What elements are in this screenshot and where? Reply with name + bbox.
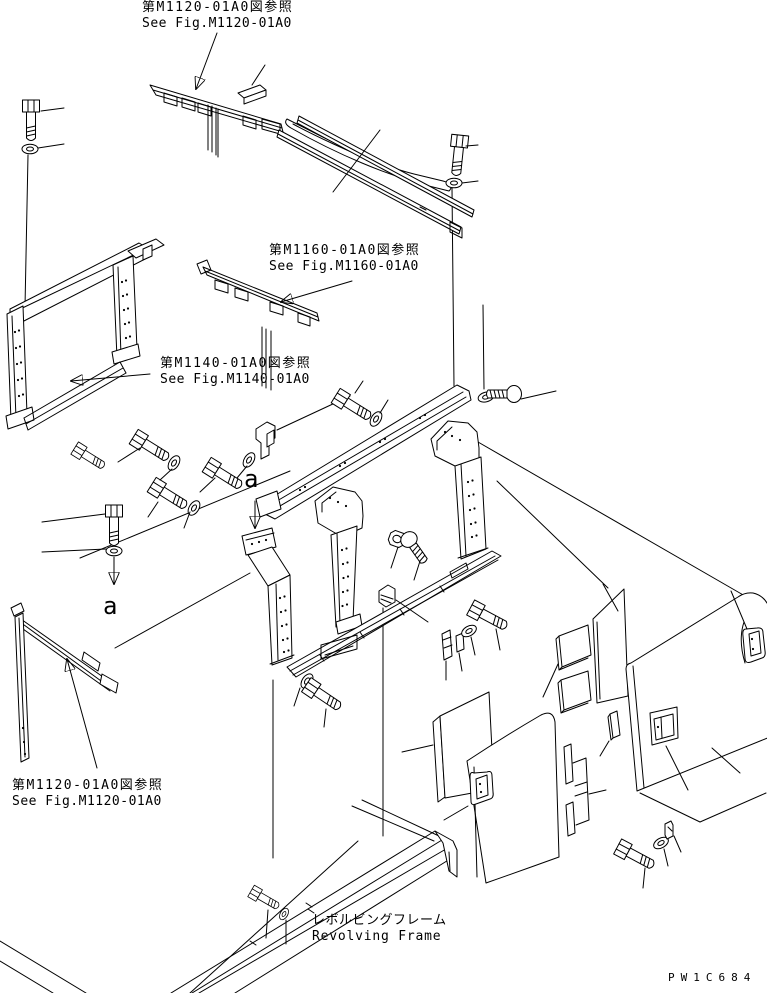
diagram-line-art [0, 0, 767, 993]
ref-label-m1140-jp: 第M1140-01A0図参照 [160, 356, 311, 372]
bottom-right-fasteners [614, 821, 681, 888]
ref-label-m1120-top: 第M1120-01A0図参照 See Fig.M1120-01A0 [142, 0, 293, 32]
revolving-frame-label: レボルビングフレーム Revolving Frame [312, 913, 447, 945]
small-block-part [238, 65, 266, 104]
fastener-cluster [71, 429, 257, 528]
ref-label-m1160: 第M1160-01A0図参照 See Fig.M1160-01A0 [269, 243, 420, 275]
parts-diagram-canvas: 第M1120-01A0図参照 See Fig.M1120-01A0 第M1160… [0, 0, 767, 993]
top-right-bolt-group [446, 134, 478, 188]
section-marker-a-lower: a [103, 594, 117, 618]
bottom-left-frame [11, 603, 118, 762]
rear-sheet-panel [593, 584, 628, 703]
lower-left-bolt-group [294, 672, 345, 727]
right-door-panel [626, 591, 767, 822]
pad-panels [543, 625, 591, 713]
ref-label-m1120-top-en: See Fig.M1120-01A0 [142, 16, 293, 32]
ref-label-m1140-en: See Fig.M1140-01A0 [160, 372, 311, 388]
ref-label-m1160-jp: 第M1160-01A0図参照 [269, 243, 420, 259]
left-pillar [242, 528, 294, 665]
revolving-frame-label-en: Revolving Frame [312, 929, 447, 945]
ref-label-m1140: 第M1140-01A0図参照 See Fig.M1140-01A0 [160, 356, 311, 388]
drawing-code: PW1C684 [668, 971, 756, 984]
long-bar-upper [297, 116, 474, 217]
section-bolt-group [42, 505, 123, 584]
ref-label-m1160-en: See Fig.M1160-01A0 [269, 259, 420, 275]
revolving-frame-beam [0, 800, 457, 993]
revolving-frame-label-jp: レボルビングフレーム [312, 913, 447, 929]
sill-right-parts [442, 600, 510, 680]
ref-label-m1120-bottom: 第M1120-01A0図参照 See Fig.M1120-01A0 [12, 778, 163, 810]
small-strip-panel [600, 711, 620, 756]
door-strips [564, 744, 606, 836]
top-left-bolt-group [22, 100, 64, 154]
right-pillar [431, 421, 488, 559]
middle-pillar [315, 487, 363, 634]
left-frame [6, 239, 164, 430]
ref-label-m1120-bottom-en: See Fig.M1120-01A0 [12, 794, 163, 810]
section-marker-a-upper: a [244, 467, 258, 491]
ref-label-m1120-top-jp: 第M1120-01A0図参照 [142, 0, 293, 16]
ref-label-m1120-bottom-jp: 第M1120-01A0図参照 [12, 778, 163, 794]
